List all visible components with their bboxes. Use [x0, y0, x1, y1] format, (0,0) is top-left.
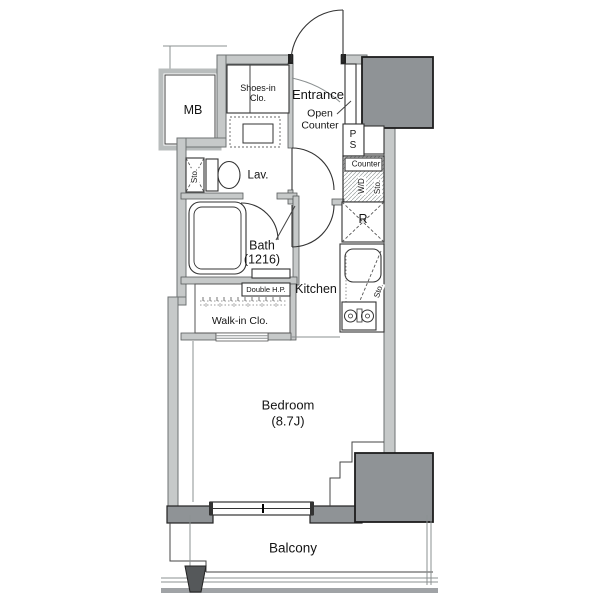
label-lavatory-storage: Sto.: [191, 168, 199, 184]
label-shoes-in-closet: Shoes-in Clo.: [240, 84, 276, 104]
window: [209, 502, 314, 515]
balcony-outer-band: [161, 588, 438, 593]
toilet: [206, 159, 240, 191]
label-kitchen: Kitchen: [295, 283, 337, 297]
kitchen-sink: [345, 249, 381, 282]
pillar-top-right: [362, 57, 433, 128]
label-double-hanger-pipe: Double H.P.: [246, 286, 285, 294]
label-open-counter: Open Counter: [301, 108, 338, 131]
bath-step: [252, 269, 290, 278]
label-balcony: Balcony: [269, 542, 317, 557]
lavatory-door: [292, 148, 334, 190]
label-washer-dryer-storage: Sto.: [374, 179, 382, 195]
label-pipe-space: P S: [350, 129, 357, 151]
label-walk-in-closet: Walk-in Clo.: [212, 316, 268, 328]
label-refrigerator: R: [358, 213, 367, 227]
open-counter: [345, 64, 356, 124]
bathtub: [189, 202, 246, 274]
label-bath: Bath (1216): [244, 239, 280, 267]
label-entrance: Entrance: [292, 88, 344, 102]
floor-plan: MB Shoes-in Clo. Entrance Open Counter P…: [0, 0, 600, 600]
label-counter: Counter: [352, 161, 380, 170]
closet-sliding-door: [216, 333, 268, 341]
bath-door: [241, 203, 278, 240]
label-lavatory: Lav.: [248, 170, 269, 183]
label-washer-dryer: W/D: [358, 177, 366, 195]
stove: [342, 302, 376, 330]
label-mb: MB: [184, 104, 203, 118]
entrance-door: [288, 10, 346, 64]
hanger-pipe-symbol: [200, 297, 287, 307]
label-bedroom: Bedroom (8.7J): [262, 397, 315, 428]
pillar-bottom-right: [355, 453, 433, 522]
